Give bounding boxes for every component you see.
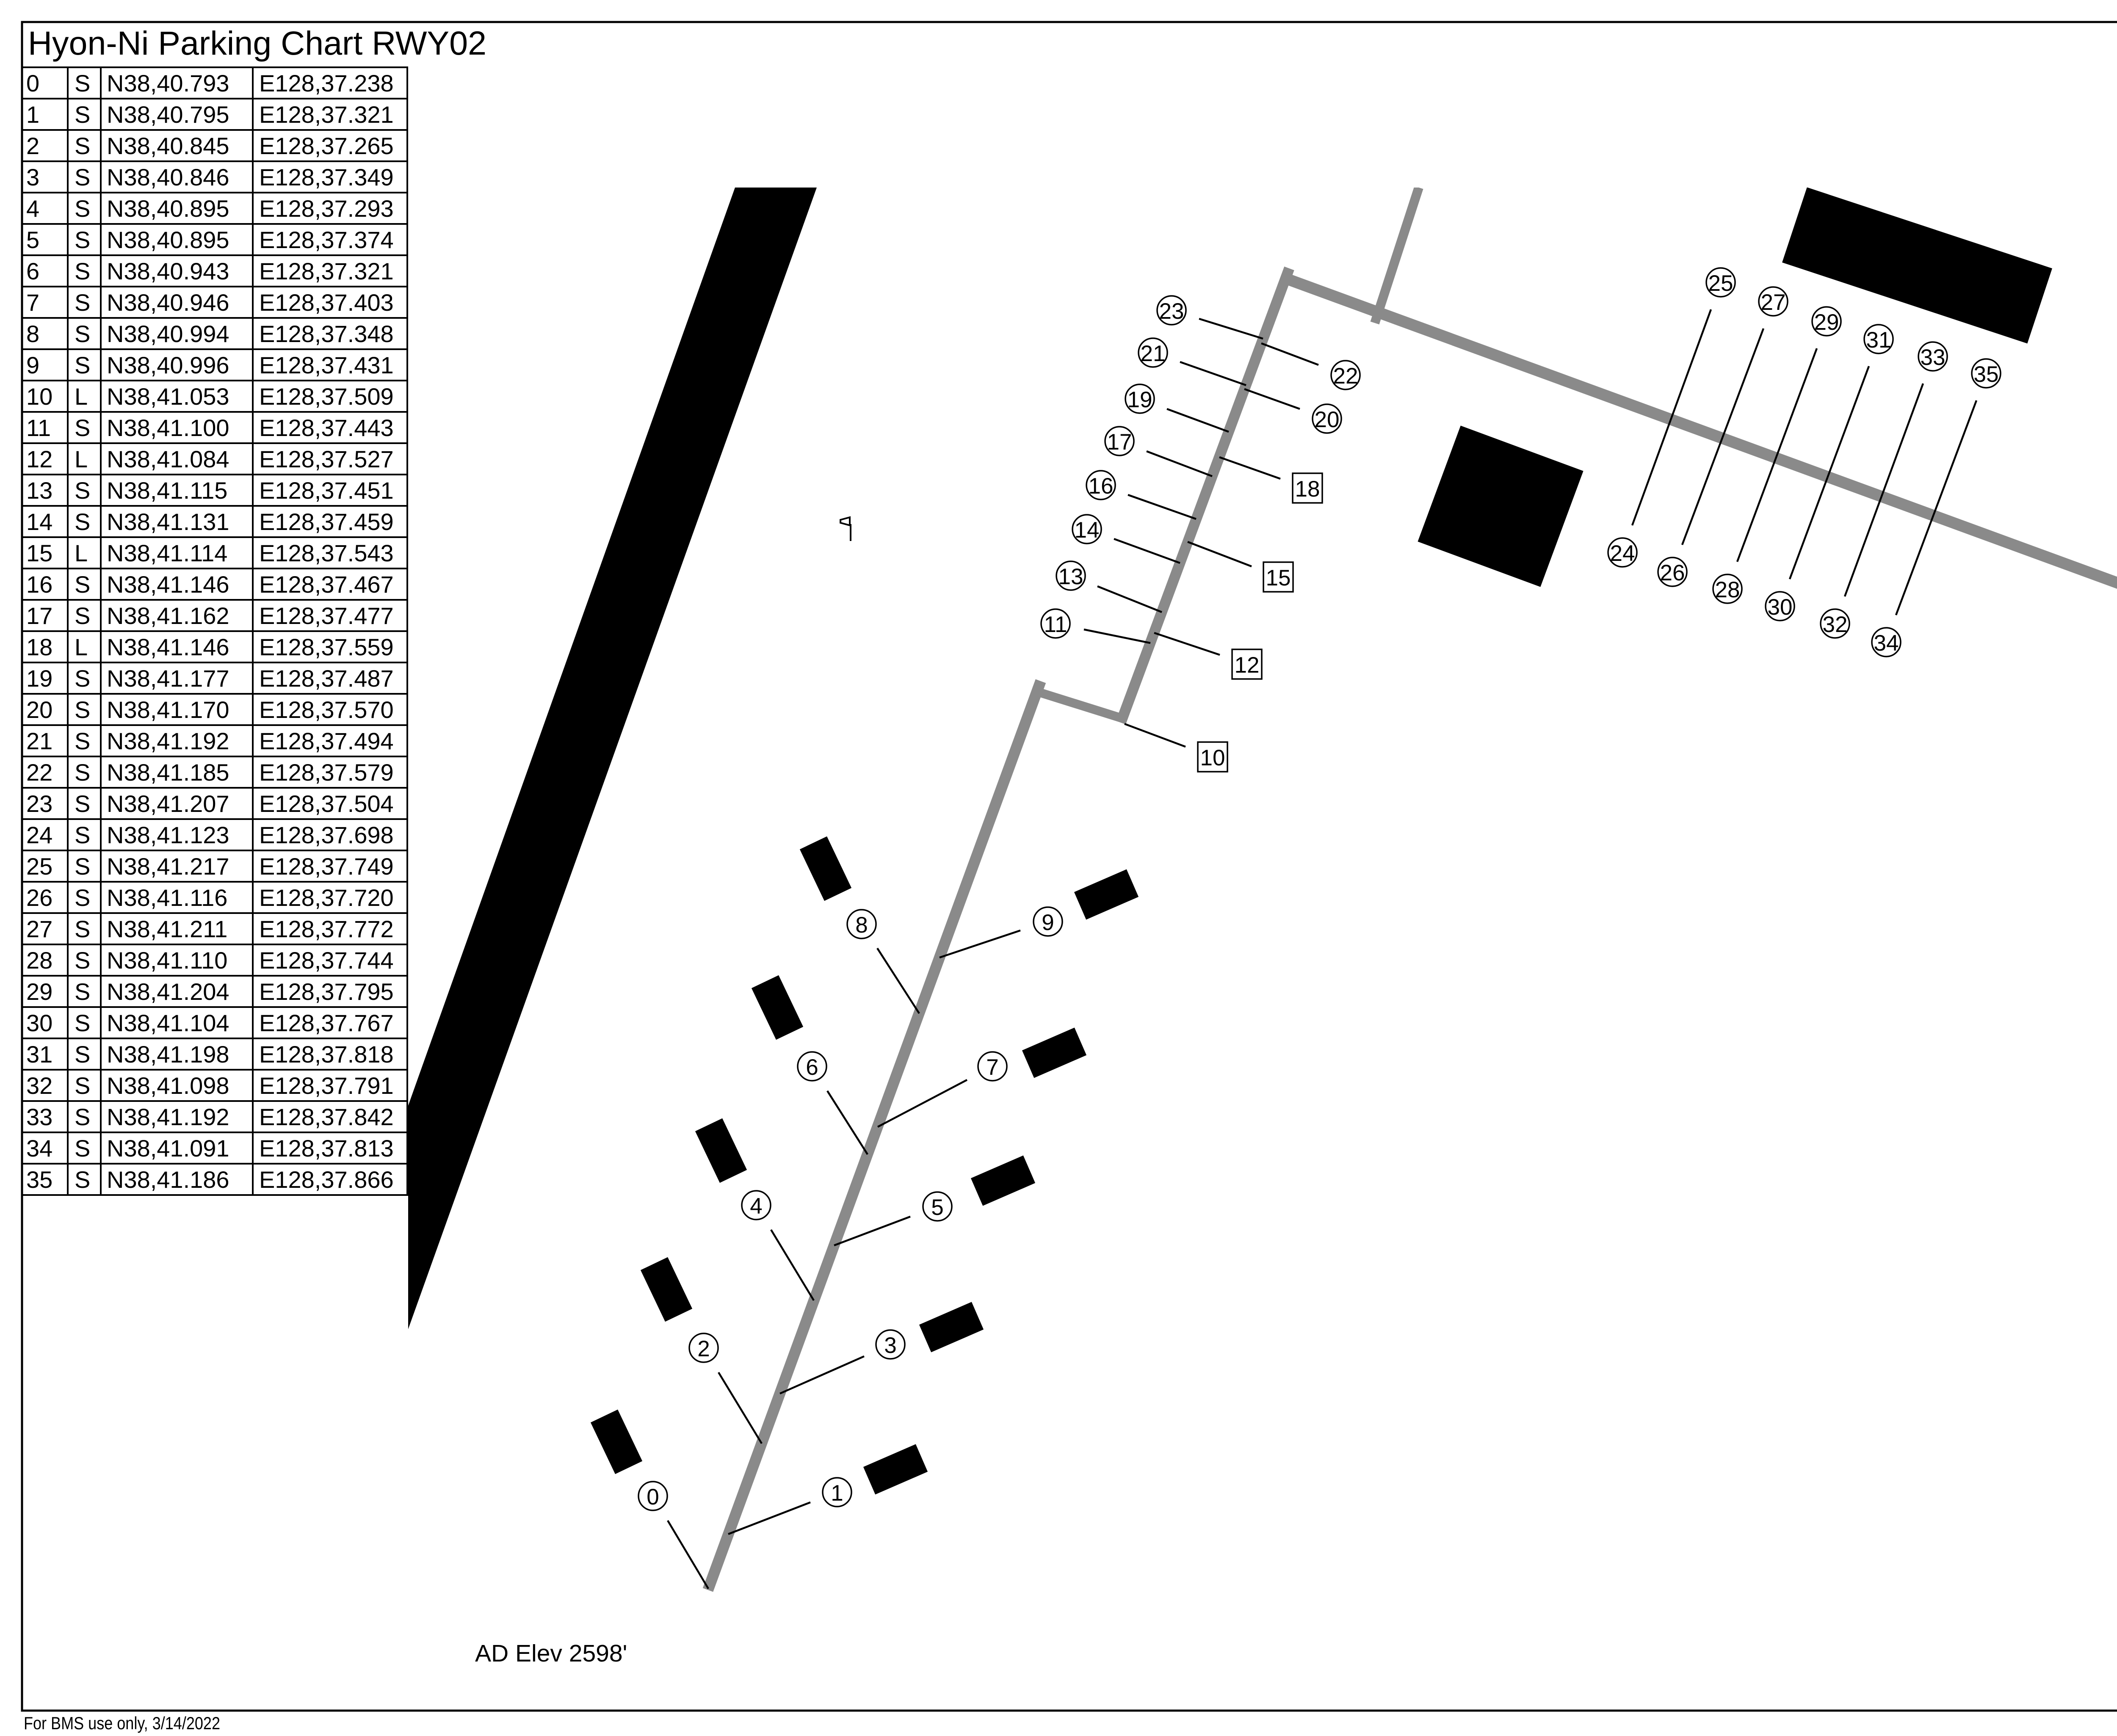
svg-text:E128,37.494: E128,37.494 — [259, 728, 394, 754]
svg-text:S: S — [75, 571, 90, 598]
svg-text:12: 12 — [1235, 653, 1260, 678]
svg-text:E128,37.443: E128,37.443 — [259, 414, 394, 441]
svg-text:S: S — [75, 508, 90, 535]
svg-text:26: 26 — [1660, 560, 1685, 585]
svg-text:22: 22 — [26, 759, 53, 786]
svg-text:E128,37.431: E128,37.431 — [259, 352, 394, 378]
svg-text:28: 28 — [1715, 577, 1740, 602]
svg-text:16: 16 — [26, 571, 53, 598]
svg-text:E128,37.579: E128,37.579 — [259, 759, 394, 786]
svg-text:18: 18 — [26, 634, 53, 660]
svg-text:S: S — [75, 602, 90, 629]
svg-text:E128,37.818: E128,37.818 — [259, 1041, 394, 1068]
svg-text:N38,41.110: N38,41.110 — [107, 947, 227, 974]
svg-text:E128,37.403: E128,37.403 — [259, 289, 394, 316]
svg-text:16: 16 — [1089, 474, 1114, 499]
svg-text:17: 17 — [1107, 430, 1132, 455]
svg-text:4: 4 — [26, 195, 39, 222]
svg-text:S: S — [75, 132, 90, 159]
svg-text:S: S — [75, 477, 90, 504]
svg-text:S: S — [75, 822, 90, 848]
svg-text:E128,37.293: E128,37.293 — [259, 195, 394, 222]
svg-text:AD Elev 2598': AD Elev 2598' — [475, 1640, 627, 1667]
svg-text:E128,37.570: E128,37.570 — [259, 696, 394, 723]
svg-text:S: S — [75, 947, 90, 974]
svg-text:27: 27 — [26, 916, 53, 942]
svg-text:24: 24 — [26, 822, 53, 848]
svg-text:N38,41.177: N38,41.177 — [107, 665, 229, 692]
svg-text:S: S — [75, 1166, 90, 1193]
svg-text:11: 11 — [1044, 612, 1067, 637]
svg-text:N38,41.162: N38,41.162 — [107, 602, 229, 629]
svg-text:N38,41.185: N38,41.185 — [107, 759, 229, 786]
svg-text:N38,41.116: N38,41.116 — [107, 884, 227, 911]
svg-text:12: 12 — [26, 446, 53, 472]
svg-text:S: S — [75, 1104, 90, 1130]
svg-text:N38,41.084: N38,41.084 — [107, 446, 229, 472]
svg-text:30: 30 — [1768, 595, 1793, 620]
svg-text:For BMS use only, 3/14/2022: For BMS use only, 3/14/2022 — [24, 1713, 220, 1733]
svg-text:27: 27 — [1761, 290, 1786, 315]
svg-text:S: S — [75, 916, 90, 942]
svg-text:N38,40.946: N38,40.946 — [107, 289, 229, 316]
svg-text:33: 33 — [1921, 345, 1946, 370]
svg-text:17: 17 — [26, 602, 53, 629]
svg-text:S: S — [75, 101, 90, 128]
svg-text:N38,41.114: N38,41.114 — [107, 540, 227, 566]
svg-text:S: S — [75, 258, 90, 284]
svg-text:N38,40.795: N38,40.795 — [107, 101, 229, 128]
svg-text:28: 28 — [26, 947, 53, 974]
svg-text:E128,37.767: E128,37.767 — [259, 1010, 394, 1036]
svg-text:6: 6 — [26, 258, 39, 284]
svg-text:8: 8 — [855, 913, 868, 938]
svg-text:S: S — [75, 70, 90, 97]
svg-text:N38,41.211: N38,41.211 — [107, 916, 227, 942]
svg-text:S: S — [75, 164, 90, 190]
svg-text:35: 35 — [1974, 362, 1999, 387]
svg-text:E128,37.791: E128,37.791 — [259, 1072, 394, 1099]
svg-text:S: S — [75, 790, 90, 817]
svg-text:N38,40.895: N38,40.895 — [107, 195, 229, 222]
svg-text:E128,37.321: E128,37.321 — [259, 258, 394, 284]
svg-text:N38,41.170: N38,41.170 — [107, 696, 229, 723]
svg-text:23: 23 — [1159, 299, 1184, 324]
svg-text:23: 23 — [26, 790, 53, 817]
svg-text:4: 4 — [750, 1194, 762, 1219]
svg-text:11: 11 — [26, 414, 51, 441]
svg-text:31: 31 — [1866, 328, 1891, 353]
svg-text:S: S — [75, 1041, 90, 1068]
svg-text:S: S — [75, 1135, 90, 1162]
svg-text:15: 15 — [1266, 566, 1291, 591]
svg-text:S: S — [75, 289, 90, 316]
svg-text:E128,37.265: E128,37.265 — [259, 132, 394, 159]
svg-text:N38,41.131: N38,41.131 — [107, 508, 229, 535]
svg-text:N38,41.115: N38,41.115 — [107, 477, 227, 504]
svg-text:N38,40.943: N38,40.943 — [107, 258, 229, 284]
svg-text:35: 35 — [26, 1166, 53, 1193]
svg-text:N38,40.994: N38,40.994 — [107, 320, 229, 347]
svg-text:18: 18 — [1295, 477, 1320, 502]
svg-text:3: 3 — [884, 1333, 896, 1358]
svg-text:0: 0 — [647, 1485, 659, 1510]
svg-text:0: 0 — [26, 70, 39, 97]
svg-text:N38,41.053: N38,41.053 — [107, 383, 229, 410]
svg-text:29: 29 — [26, 978, 53, 1005]
svg-text:24: 24 — [1610, 541, 1635, 566]
svg-text:15: 15 — [26, 540, 53, 566]
svg-text:2: 2 — [697, 1336, 710, 1361]
svg-text:E128,37.459: E128,37.459 — [259, 508, 394, 535]
svg-text:25: 25 — [1708, 271, 1733, 296]
svg-text:N38,41.146: N38,41.146 — [107, 634, 229, 660]
svg-text:N38,41.100: N38,41.100 — [107, 414, 229, 441]
svg-text:N38,41.198: N38,41.198 — [107, 1041, 229, 1068]
svg-text:E128,37.348: E128,37.348 — [259, 320, 394, 347]
svg-text:S: S — [75, 1010, 90, 1036]
svg-text:E128,37.374: E128,37.374 — [259, 226, 394, 253]
svg-text:S: S — [75, 978, 90, 1005]
svg-text:13: 13 — [1058, 564, 1083, 589]
svg-text:7: 7 — [986, 1055, 998, 1080]
svg-text:N38,41.192: N38,41.192 — [107, 728, 229, 754]
svg-text:E128,37.698: E128,37.698 — [259, 822, 394, 848]
svg-text:N38,40.793: N38,40.793 — [107, 70, 229, 97]
svg-text:Hyon-Ni Parking Chart RWY02: Hyon-Ni Parking Chart RWY02 — [28, 24, 486, 62]
svg-text:31: 31 — [26, 1041, 53, 1068]
svg-text:E128,37.238: E128,37.238 — [259, 70, 394, 97]
svg-text:L: L — [75, 540, 88, 566]
svg-text:N38,41.192: N38,41.192 — [107, 1104, 229, 1130]
svg-text:N38,41.104: N38,41.104 — [107, 1010, 229, 1036]
svg-text:32: 32 — [1823, 612, 1848, 637]
svg-text:L: L — [75, 446, 88, 472]
svg-text:6: 6 — [806, 1055, 818, 1080]
svg-text:5: 5 — [931, 1195, 943, 1220]
svg-text:N38,40.846: N38,40.846 — [107, 164, 229, 190]
svg-text:E128,37.509: E128,37.509 — [259, 383, 394, 410]
svg-text:30: 30 — [26, 1010, 53, 1036]
svg-text:E128,37.744: E128,37.744 — [259, 947, 394, 974]
svg-text:2: 2 — [26, 132, 39, 159]
svg-text:20: 20 — [1315, 407, 1340, 432]
svg-text:9: 9 — [26, 352, 39, 378]
svg-text:10: 10 — [1200, 745, 1225, 770]
svg-text:33: 33 — [26, 1104, 53, 1130]
svg-text:14: 14 — [1075, 518, 1100, 543]
svg-text:E128,37.487: E128,37.487 — [259, 665, 394, 692]
svg-text:N38,41.204: N38,41.204 — [107, 978, 229, 1005]
svg-text:7: 7 — [26, 289, 39, 316]
svg-text:L: L — [75, 634, 88, 660]
svg-text:N38,41.186: N38,41.186 — [107, 1166, 229, 1193]
svg-text:E128,37.795: E128,37.795 — [259, 978, 394, 1005]
svg-text:25: 25 — [26, 853, 53, 880]
svg-text:8: 8 — [26, 320, 39, 347]
svg-text:10: 10 — [26, 383, 53, 410]
svg-text:1: 1 — [831, 1481, 843, 1506]
svg-text:19: 19 — [1128, 387, 1152, 412]
svg-text:1: 1 — [26, 101, 39, 128]
svg-text:S: S — [75, 759, 90, 786]
svg-text:21: 21 — [1141, 341, 1166, 366]
svg-text:N38,41.207: N38,41.207 — [107, 790, 229, 817]
svg-text:S: S — [75, 226, 90, 253]
svg-text:21: 21 — [26, 728, 53, 754]
svg-text:N38,40.845: N38,40.845 — [107, 132, 229, 159]
svg-text:S: S — [75, 728, 90, 754]
svg-text:9: 9 — [1042, 910, 1054, 935]
svg-text:E128,37.720: E128,37.720 — [259, 884, 394, 911]
svg-text:E128,37.842: E128,37.842 — [259, 1104, 394, 1130]
svg-text:E128,37.467: E128,37.467 — [259, 571, 394, 598]
svg-text:S: S — [75, 884, 90, 911]
svg-text:N38,41.091: N38,41.091 — [107, 1135, 229, 1162]
svg-text:L: L — [75, 383, 88, 410]
svg-text:E128,37.813: E128,37.813 — [259, 1135, 394, 1162]
svg-text:20: 20 — [26, 696, 53, 723]
svg-text:N38,41.123: N38,41.123 — [107, 822, 229, 848]
svg-text:N38,40.996: N38,40.996 — [107, 352, 229, 378]
svg-text:14: 14 — [26, 508, 53, 535]
svg-text:13: 13 — [26, 477, 53, 504]
svg-text:3: 3 — [26, 164, 39, 190]
svg-text:34: 34 — [1874, 631, 1899, 656]
svg-text:34: 34 — [26, 1135, 53, 1162]
svg-text:E128,37.559: E128,37.559 — [259, 634, 394, 660]
svg-text:E128,37.349: E128,37.349 — [259, 164, 394, 190]
svg-text:S: S — [75, 414, 90, 441]
svg-text:S: S — [75, 696, 90, 723]
svg-text:N38,41.146: N38,41.146 — [107, 571, 229, 598]
svg-text:E128,37.504: E128,37.504 — [259, 790, 394, 817]
svg-text:S: S — [75, 352, 90, 378]
svg-text:E128,37.543: E128,37.543 — [259, 540, 394, 566]
svg-text:S: S — [75, 1072, 90, 1099]
svg-text:E128,37.527: E128,37.527 — [259, 446, 394, 472]
svg-text:32: 32 — [26, 1072, 53, 1099]
svg-text:26: 26 — [26, 884, 53, 911]
svg-text:N38,41.098: N38,41.098 — [107, 1072, 229, 1099]
svg-text:29: 29 — [1814, 310, 1839, 335]
svg-text:S: S — [75, 665, 90, 692]
svg-text:E128,37.866: E128,37.866 — [259, 1166, 394, 1193]
svg-text:E128,37.749: E128,37.749 — [259, 853, 394, 880]
svg-text:E128,37.321: E128,37.321 — [259, 101, 394, 128]
svg-text:22: 22 — [1333, 364, 1358, 389]
svg-text:S: S — [75, 320, 90, 347]
svg-text:E128,37.451: E128,37.451 — [259, 477, 394, 504]
svg-text:N38,40.895: N38,40.895 — [107, 226, 229, 253]
svg-text:S: S — [75, 853, 90, 880]
svg-text:N38,41.217: N38,41.217 — [107, 853, 229, 880]
svg-text:19: 19 — [26, 665, 53, 692]
svg-text:E128,37.477: E128,37.477 — [259, 602, 394, 629]
svg-text:S: S — [75, 195, 90, 222]
svg-text:E128,37.772: E128,37.772 — [259, 916, 394, 942]
svg-text:5: 5 — [26, 226, 39, 253]
